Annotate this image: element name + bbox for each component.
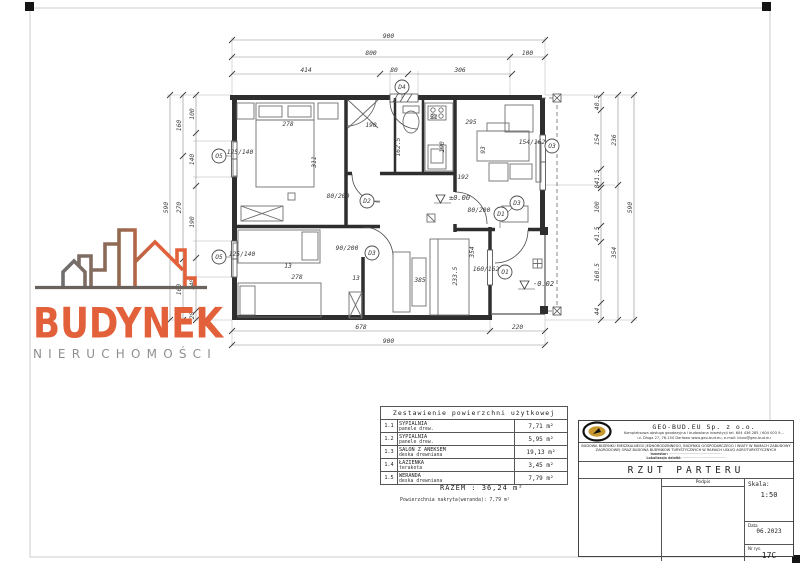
dim-label: 800 <box>365 50 377 57</box>
tag-label-d1: D1 <box>496 211 504 218</box>
budynek-watermark-logo: BUDYNEK NIERUCHOMOŚCI <box>33 200 211 361</box>
veranda-door-swing <box>495 230 528 263</box>
signature-cell: Podpis <box>662 479 745 561</box>
room-floor: panele drew. <box>399 427 513 432</box>
company-line2: ul. Długa 27, 76-150 Darłowo www.geo-bud… <box>615 436 793 440</box>
dim-label: 93 <box>480 146 487 154</box>
row-no: 1.4 <box>381 459 398 472</box>
tag-label-d3: D3 <box>512 200 521 207</box>
cabinet <box>510 164 532 179</box>
dim-label: 414 <box>300 67 312 74</box>
signature-cell-left <box>579 479 662 561</box>
geobud-logo-icon <box>582 421 612 442</box>
company-name: GEO-BUD.EU Sp. z o.o. <box>615 423 793 431</box>
tag-label-d3: D3 <box>367 250 376 257</box>
total-label: RAZEM : <box>440 484 477 492</box>
room-floor: deska drewniana <box>399 479 513 484</box>
geobud-logo <box>579 421 615 442</box>
dim-label: 590 <box>627 202 634 214</box>
skyline-path <box>63 230 195 286</box>
tag-label-d2: D2 <box>362 198 371 205</box>
room-area: 19,13 m² <box>515 446 568 459</box>
dim-label: 233.5 <box>452 266 459 285</box>
nightstand <box>318 103 338 119</box>
row-no: 1.1 <box>381 420 398 433</box>
title-block-bottom: Podpis Skala: 1:50 Data 06.2023 Nr rys. … <box>579 479 793 561</box>
dim-label: 125/140 <box>227 149 254 156</box>
drawing-title: RZUT PARTERU <box>579 462 793 479</box>
level-mark <box>520 281 529 289</box>
covered-area-note: Powierzchnia nakryta(weranda): 7,79 m² <box>400 498 510 503</box>
outer-walls <box>230 95 543 320</box>
scale-cell: Skala: 1:50 <box>745 479 793 522</box>
table <box>477 131 529 161</box>
toilet <box>403 111 419 133</box>
podpis-label: Podpis <box>662 479 744 487</box>
dim-label: 40.5 <box>594 95 601 110</box>
date-value: 06.2023 <box>748 528 790 535</box>
crop-mark <box>25 2 34 11</box>
room-area: 3,45 m² <box>515 459 568 472</box>
dim-label: 8 <box>594 184 601 188</box>
dim-label: 236 <box>611 134 618 146</box>
dim-label: 162.5 <box>395 137 402 156</box>
meta-column: Skala: 1:50 Data 06.2023 Nr rys. 17C <box>745 479 793 561</box>
dim-label: 154 <box>594 134 601 146</box>
dim-label: 90/200 <box>336 245 359 252</box>
dim-label: 41.5 <box>594 169 601 184</box>
watermark-subtitle: NIERUCHOMOŚCI <box>33 347 211 361</box>
level-mark <box>436 195 445 203</box>
table-row: 1.5 WERANDAdeska drewniana 7,79 m² <box>381 472 568 485</box>
dim-label: 44 <box>594 308 601 316</box>
dim-label: 311 <box>311 156 318 169</box>
room-floor: terakota <box>399 466 513 471</box>
drawing-sheet: 9008001004148030667822090010014019014020… <box>0 0 800 565</box>
dim-label: 100 <box>189 108 196 120</box>
dim-label: 31 <box>429 114 438 121</box>
level-label: -0.02 <box>533 280 554 288</box>
tag-label-o5: O5 <box>215 153 223 160</box>
symbol-box <box>288 193 295 200</box>
title-block-header: GEO-BUD.EU Sp. z o.o. Kompleksowa obsług… <box>579 421 793 443</box>
scale-label: Skala: <box>748 481 790 488</box>
dim-label: 306 <box>453 67 466 74</box>
dim-label: 354 <box>611 247 618 260</box>
dim-label: 295 <box>465 119 477 126</box>
dim-label: 354 <box>469 246 476 259</box>
dim-label: 100 <box>594 201 601 213</box>
dim-label: 80 <box>390 67 398 74</box>
dim-label: 125/140 <box>229 251 256 258</box>
date-cell: Data 06.2023 <box>745 522 793 545</box>
room-area: 5,95 m² <box>515 433 568 446</box>
dim-label: 13 <box>352 275 360 282</box>
interior-walls <box>232 95 542 318</box>
bed <box>256 103 314 187</box>
area-table-title: Zestawienie powierzchni użytkowej <box>380 406 568 419</box>
dim-label: 160/162 <box>473 266 500 273</box>
sofa <box>430 239 469 315</box>
lokalizacja-label: Lokalizacja działki: <box>646 456 681 460</box>
dim-label: 80/200 <box>468 207 491 214</box>
dim-label: 278 <box>291 274 303 281</box>
chair <box>489 163 508 181</box>
area-table: Zestawienie powierzchni użytkowej 1.1 SY… <box>380 406 568 485</box>
dim-label: 190 <box>439 141 446 153</box>
bed <box>238 283 321 317</box>
total-value: 36,24 m² <box>482 484 524 492</box>
dim-label: 192 <box>457 174 469 181</box>
dim-label: 140 <box>189 154 196 166</box>
room-floor: panele drew. <box>399 440 513 445</box>
dim-label: 220 <box>512 324 524 331</box>
dim-label: 900 <box>383 33 395 40</box>
lokalizacja-value: ········································… <box>683 456 726 460</box>
dim-label: 80/200 <box>327 193 350 200</box>
row-no: 1.5 <box>381 472 398 485</box>
scale-value: 1:50 <box>748 491 790 499</box>
room-area: 7,71 m² <box>515 420 568 433</box>
tag-label-o3: O3 <box>548 143 556 150</box>
nightstand <box>237 103 254 119</box>
dim-label: 160.5 <box>594 263 601 282</box>
crop-mark <box>762 2 771 11</box>
leader-lines <box>226 95 545 258</box>
tag-label-o5: O5 <box>215 254 223 261</box>
total-area: RAZEM : 36,24 m² <box>440 484 568 492</box>
table-row: 1.3 SALON Z ANEKSEMdeska drewniana 19,13… <box>381 446 568 459</box>
project-description: BUDOWA BUDYNKU MIESZKALNEGO JEDNORODZINN… <box>579 443 793 462</box>
dim-label: 385 <box>413 277 426 284</box>
dim-label: 278 <box>282 121 294 128</box>
title-block: GEO-BUD.EU Sp. z o.o. Kompleksowa obsług… <box>578 420 794 557</box>
lokalizacja-line: Lokalizacja działki: ···················… <box>581 456 791 460</box>
table-row: 1.1 SYPIALNIApanele drew. 7,71 m² <box>381 420 568 433</box>
level-label: ±0.00 <box>449 194 470 202</box>
table <box>393 252 410 312</box>
row-no: 1.3 <box>381 446 398 459</box>
row-no: 1.2 <box>381 433 398 446</box>
dim-label: 678 <box>355 324 367 331</box>
dim-label: 154/162 <box>519 139 546 146</box>
dim-label: 190 <box>365 122 377 129</box>
table-row: 1.2 SYPIALNIApanele drew. 5,95 m² <box>381 433 568 446</box>
table-row: 1.4 ŁAZIENKAterakota 3,45 m² <box>381 459 568 472</box>
dim-label: 160 <box>176 120 183 132</box>
shelf <box>487 123 509 131</box>
drawing-number-value: 17C <box>748 551 790 560</box>
room-area: 7,79 m² <box>515 472 568 485</box>
dim-label: 100 <box>522 50 534 57</box>
bed <box>238 230 320 263</box>
room-floor: deska drewniana <box>399 453 513 458</box>
skyline-logo-graphic <box>33 200 211 297</box>
dim-label: 41.5 <box>594 226 601 241</box>
watermark-title: BUDYNEK <box>33 303 204 344</box>
tag-label-o1: O1 <box>501 269 508 276</box>
company-line1: Kompleksowa obsługa geodezyjna i budowla… <box>615 431 793 435</box>
kitchen-counter <box>425 103 453 171</box>
dim-label: 13 <box>284 263 292 270</box>
dim-label: 900 <box>383 338 395 345</box>
drawing-number-cell: Nr rys. 17C <box>745 545 793 561</box>
tag-label-d4: D4 <box>397 84 406 91</box>
